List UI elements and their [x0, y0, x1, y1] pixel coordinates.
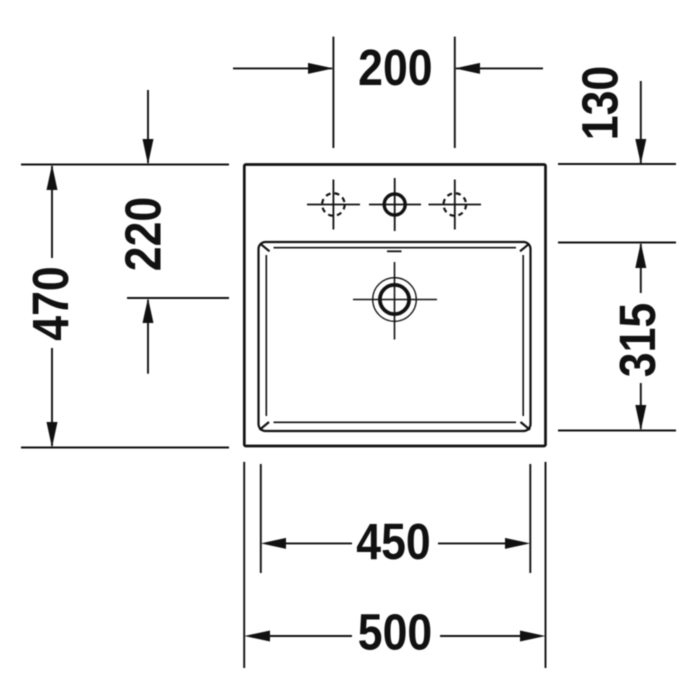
svg-text:500: 500 — [358, 605, 432, 661]
svg-text:130: 130 — [573, 66, 629, 140]
svg-text:450: 450 — [356, 514, 430, 570]
svg-text:470: 470 — [23, 266, 79, 340]
svg-text:200: 200 — [358, 40, 432, 96]
svg-text:315: 315 — [610, 303, 666, 377]
svg-text:220: 220 — [116, 197, 172, 271]
